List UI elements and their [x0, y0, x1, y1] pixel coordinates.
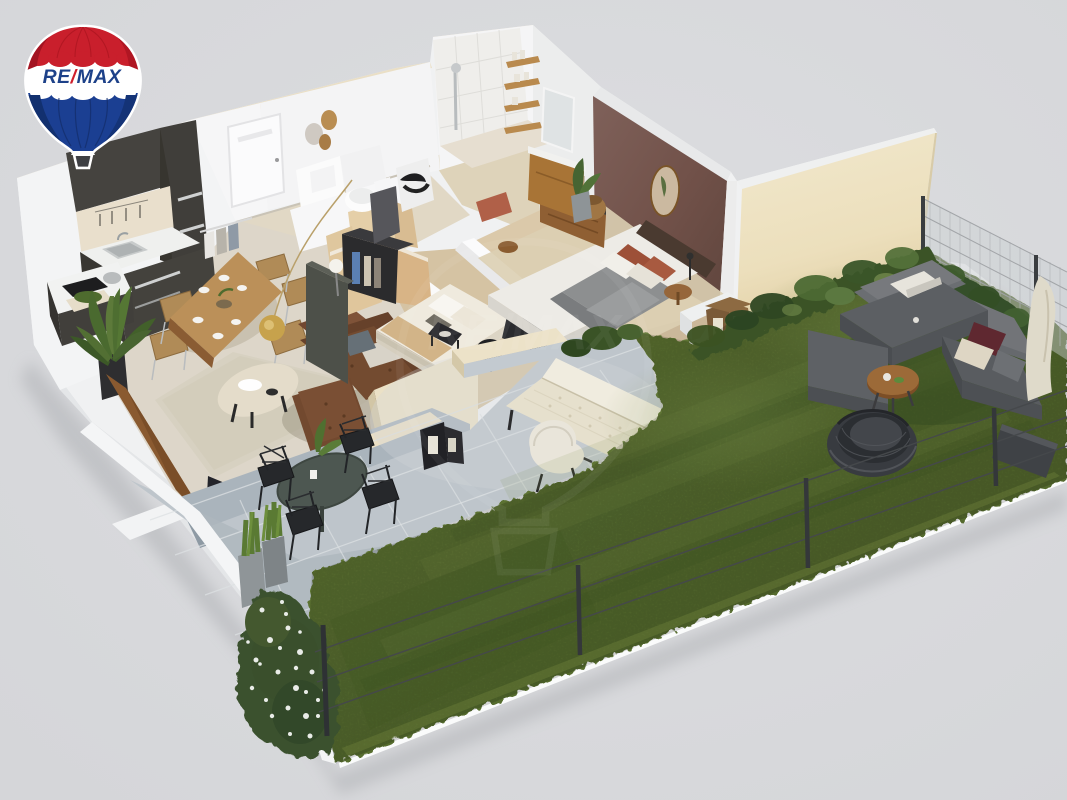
svg-text:RE/MAX: RE/MAX — [427, 305, 623, 361]
svg-text:RE/MAX: RE/MAX — [43, 66, 122, 88]
